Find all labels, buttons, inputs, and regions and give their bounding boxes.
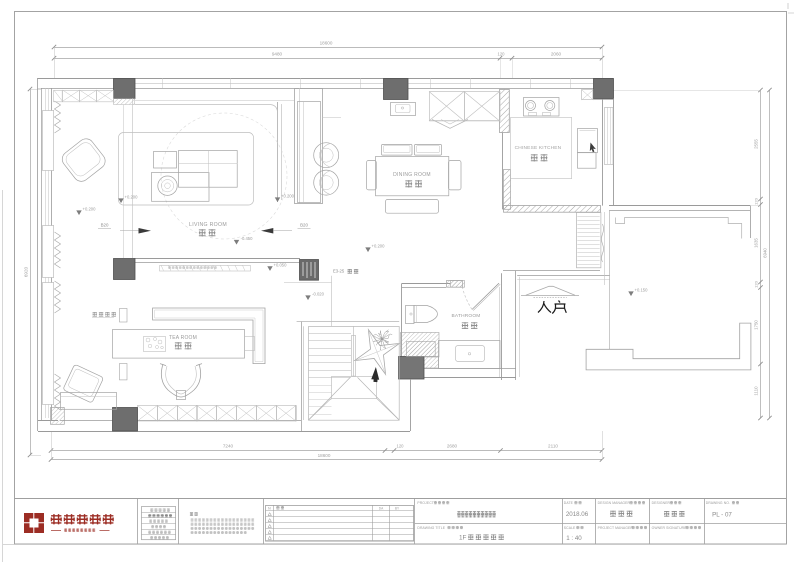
svg-text:-0.450: -0.450 (241, 236, 254, 241)
svg-text:7240: 7240 (223, 444, 234, 449)
svg-text:+0.050: +0.050 (274, 262, 288, 267)
svg-text:2018.06: 2018.06 (566, 511, 589, 518)
svg-text:B20: B20 (300, 223, 308, 228)
svg-text:DESIGNER: DESIGNER (652, 501, 671, 505)
svg-text:1 : 40: 1 : 40 (566, 535, 582, 542)
svg-text:1110: 1110 (754, 386, 759, 396)
svg-text:6920: 6920 (24, 266, 29, 277)
svg-text:+0.200: +0.200 (83, 207, 97, 212)
svg-text:18600: 18600 (318, 453, 331, 458)
svg-text:120: 120 (754, 280, 759, 287)
svg-text:1635: 1635 (754, 238, 759, 248)
svg-text:PROJECT: PROJECT (417, 501, 434, 505)
svg-text:1F: 1F (459, 535, 467, 542)
svg-text:1750: 1750 (754, 320, 759, 330)
svg-text:120: 120 (397, 444, 405, 449)
svg-text:DATE: DATE (564, 501, 574, 505)
svg-text:+0.200: +0.200 (281, 194, 295, 199)
svg-text:+0.200: +0.200 (125, 195, 139, 200)
svg-text:+0.200: +0.200 (372, 244, 386, 249)
svg-text:DRAWING TITLE: DRAWING TITLE (417, 526, 445, 530)
svg-text:PROJECT MANAGER: PROJECT MANAGER (598, 526, 634, 530)
svg-text:E3-25: E3-25 (333, 269, 345, 274)
svg-text:DRAWING NO.: DRAWING NO. (706, 501, 730, 505)
svg-text:BATHROOM: BATHROOM (452, 313, 481, 319)
svg-text:B20: B20 (101, 223, 109, 228)
svg-text:OWNER SIGNATURE: OWNER SIGNATURE (652, 526, 688, 530)
svg-text:120: 120 (498, 52, 506, 57)
svg-text:TEA ROOM: TEA ROOM (169, 335, 197, 341)
svg-text:+0.150: +0.150 (635, 288, 649, 293)
svg-text:PL - 07: PL - 07 (712, 512, 732, 519)
svg-text:6940: 6940 (763, 248, 768, 258)
svg-text:9480: 9480 (272, 52, 283, 57)
svg-text:18600: 18600 (320, 41, 333, 46)
svg-text:LIVING ROOM: LIVING ROOM (189, 222, 227, 228)
svg-text:SCALE: SCALE (564, 526, 576, 530)
svg-text:2110: 2110 (548, 444, 558, 449)
svg-text:120: 120 (754, 197, 759, 204)
svg-text:CHINESE KITCHEN: CHINESE KITCHEN (515, 145, 562, 151)
svg-text:DINING ROOM: DINING ROOM (393, 172, 431, 178)
svg-text:-0.020: -0.020 (312, 292, 325, 297)
svg-text:2680: 2680 (447, 444, 458, 449)
svg-text:2555: 2555 (754, 139, 759, 149)
svg-text:DESIGN MANAGER: DESIGN MANAGER (598, 501, 631, 505)
svg-text:2060: 2060 (551, 52, 562, 57)
